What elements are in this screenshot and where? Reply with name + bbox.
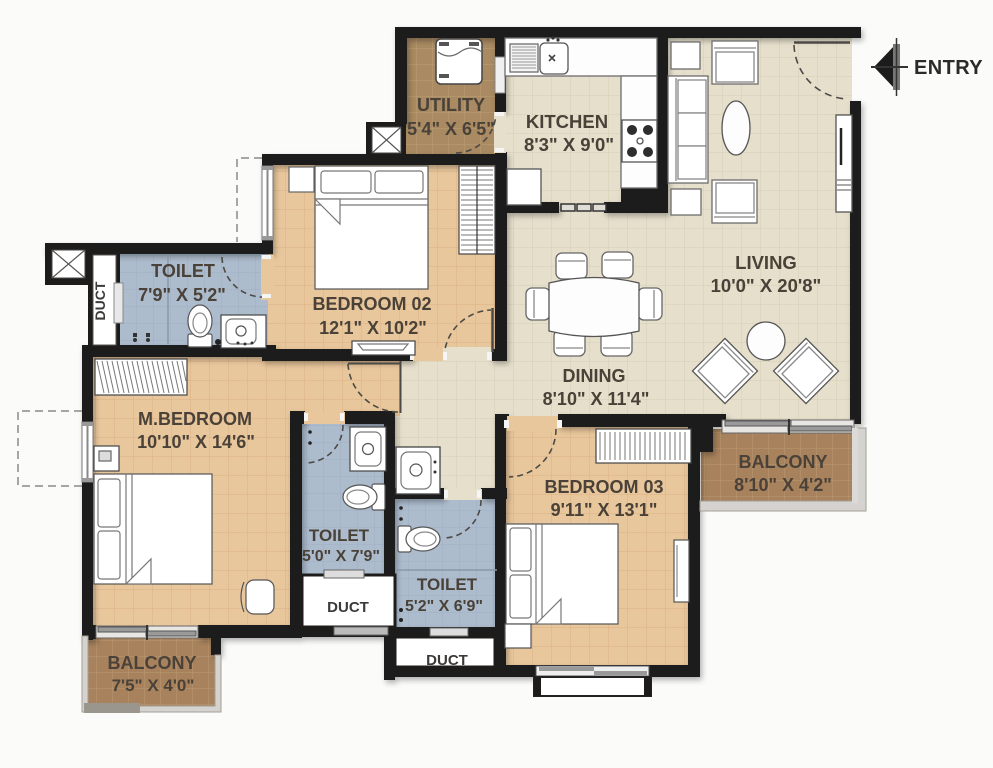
svg-text:7'5" X 4'0": 7'5" X 4'0" xyxy=(112,676,195,695)
svg-text:TOILET: TOILET xyxy=(151,261,215,281)
svg-text:M.BEDROOM: M.BEDROOM xyxy=(138,409,252,429)
svg-text:UTILITY: UTILITY xyxy=(417,95,485,115)
svg-text:ENTRY: ENTRY xyxy=(914,57,983,79)
svg-text:5'0" X 7'9": 5'0" X 7'9" xyxy=(302,548,380,565)
svg-text:7'9" X 5'2": 7'9" X 5'2" xyxy=(138,285,226,305)
svg-text:DUCT: DUCT xyxy=(327,599,369,616)
svg-text:TOILET: TOILET xyxy=(417,575,478,594)
svg-text:BEDROOM 02: BEDROOM 02 xyxy=(312,294,431,314)
svg-text:BALCONY: BALCONY xyxy=(739,452,828,472)
svg-text:BEDROOM 03: BEDROOM 03 xyxy=(544,477,663,497)
svg-text:DINING: DINING xyxy=(563,366,626,386)
svg-text:9'11" X 13'1": 9'11" X 13'1" xyxy=(551,500,658,520)
svg-text:KITCHEN: KITCHEN xyxy=(526,111,608,132)
svg-text:5'4" X 6'5": 5'4" X 6'5" xyxy=(407,119,495,139)
svg-text:12'1" X 10'2": 12'1" X 10'2" xyxy=(319,318,427,338)
svg-text:8'3" X 9'0": 8'3" X 9'0" xyxy=(524,134,614,155)
svg-text:5'2" X 6'9": 5'2" X 6'9" xyxy=(405,598,483,615)
svg-text:10'0" X 20'8": 10'0" X 20'8" xyxy=(711,275,822,296)
svg-text:DUCT: DUCT xyxy=(426,652,468,669)
svg-text:TOILET: TOILET xyxy=(309,526,370,545)
svg-text:8'10" X 4'2": 8'10" X 4'2" xyxy=(734,475,832,495)
svg-text:10'10" X 14'6": 10'10" X 14'6" xyxy=(137,432,255,452)
svg-text:BALCONY: BALCONY xyxy=(108,653,197,673)
svg-text:LIVING: LIVING xyxy=(735,252,797,273)
svg-text:8'10" X 11'4": 8'10" X 11'4" xyxy=(543,389,650,409)
svg-text:DUCT: DUCT xyxy=(92,281,108,320)
